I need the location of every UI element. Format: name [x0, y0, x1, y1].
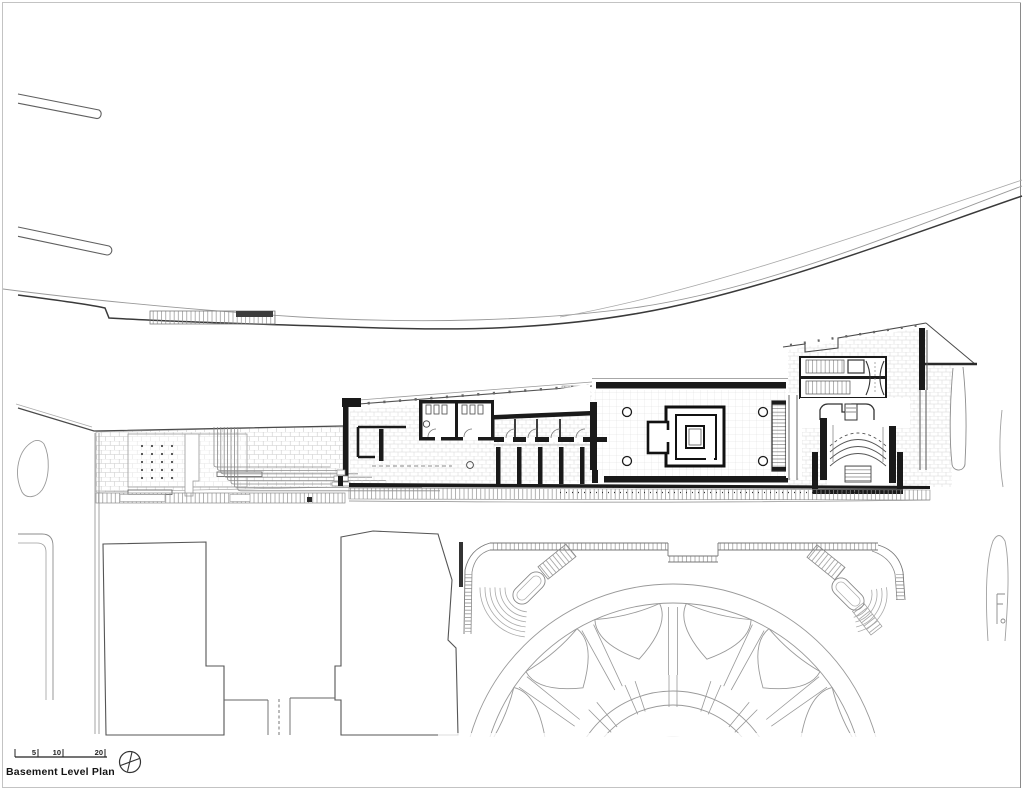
- plaza-spokes: [519, 607, 827, 726]
- circular-plaza: [438, 535, 918, 791]
- west-streets: [18, 433, 99, 734]
- scale-label-5: 5: [32, 748, 36, 757]
- sidewalk-line: [3, 186, 1022, 321]
- print-fade: [438, 733, 918, 741]
- median-island-upper: [18, 94, 101, 119]
- stair-run: [806, 381, 850, 394]
- gallery-west-wall: [590, 402, 597, 470]
- drawing-sheet: 5 10 20 Basement Level Plan: [0, 0, 1024, 791]
- plaza-south-walk: [96, 493, 345, 503]
- curb-line: [18, 196, 1022, 329]
- stair-wall: [459, 542, 463, 587]
- scale-label-20: 20: [95, 748, 103, 757]
- park-path-2: [1000, 410, 1003, 487]
- park-bench: [997, 594, 1005, 624]
- passage-link: [224, 698, 335, 735]
- plaza-ring-outer: [462, 584, 884, 791]
- planting-bed-blob: [18, 440, 49, 496]
- scale-label-10: 10: [53, 748, 61, 757]
- site-plan-canvas: [0, 0, 1024, 791]
- plaza-stair-nw: [476, 535, 582, 641]
- east-park-paths: [950, 367, 1008, 641]
- existing-buildings: [103, 531, 463, 735]
- bench: [217, 472, 262, 477]
- lane-line: [560, 180, 1022, 317]
- park-path-3: [986, 536, 1008, 642]
- plaza-inner-tabs: [589, 675, 758, 732]
- stair-bulb-nw: [509, 568, 549, 608]
- north-arrow-icon: [118, 750, 144, 776]
- plaza-petals: [487, 604, 860, 754]
- plaza-rings: [462, 584, 884, 791]
- gallery-south-wall: [604, 476, 788, 483]
- south-promenade: [349, 483, 930, 502]
- park-path-1: [950, 367, 966, 470]
- stair-run: [806, 360, 844, 373]
- building-outline-a: [103, 542, 224, 735]
- building-outline-b: [335, 531, 458, 735]
- east-wall: [919, 328, 925, 390]
- street-hatch-strip: [150, 311, 275, 324]
- stage-stairs: [845, 466, 871, 482]
- scale-bar: 5 10 20: [6, 744, 122, 760]
- service-room-block: [800, 357, 886, 398]
- restroom-block: [419, 400, 495, 441]
- gallery-stair-shaft: [772, 401, 786, 471]
- street-curve-upper: [3, 180, 1022, 329]
- gallery-north-wall: [596, 382, 786, 389]
- median-island-lower: [18, 227, 112, 255]
- link-corridor: [786, 393, 802, 480]
- plaza-stair-ne: [803, 545, 893, 639]
